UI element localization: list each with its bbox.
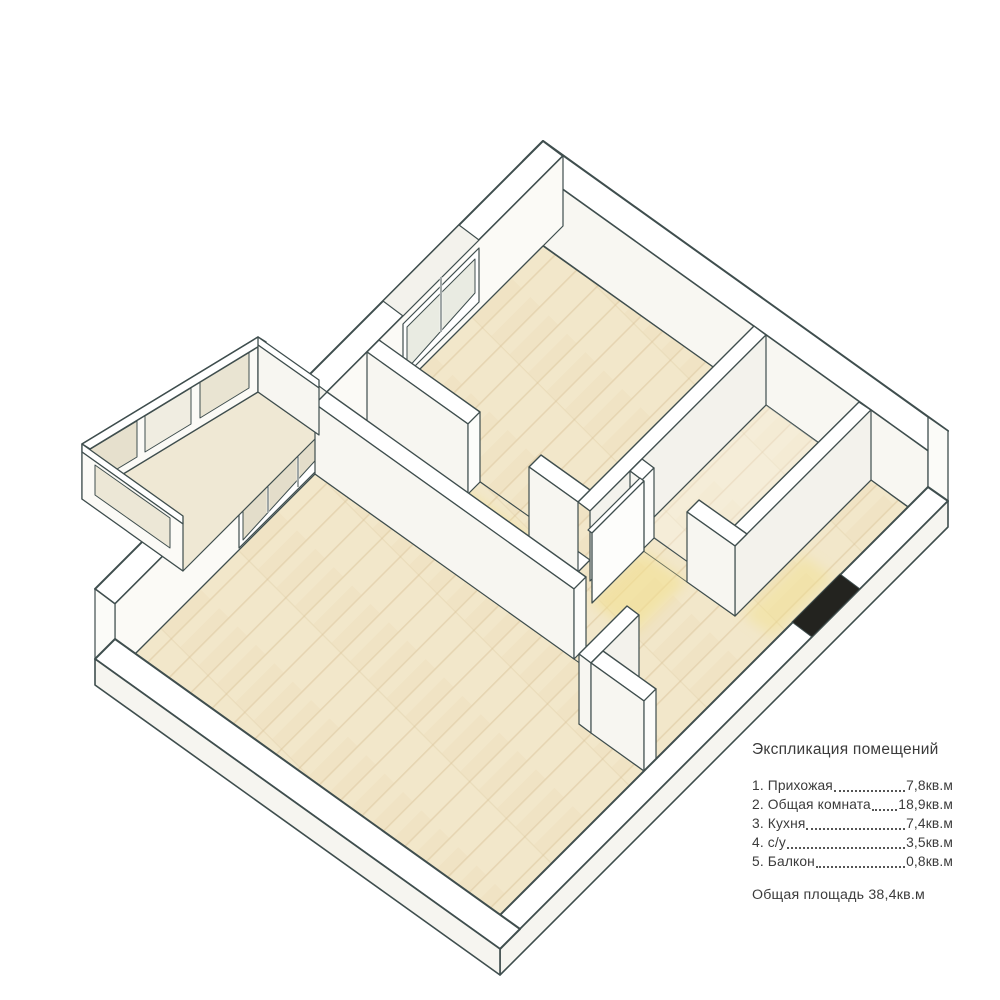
- room-area: 0,8кв.м: [906, 852, 953, 871]
- dot-leader: [816, 866, 905, 868]
- legend-row-bathroom: 4. с/у 3,5кв.м: [752, 833, 953, 852]
- room-name: 4. с/у: [752, 833, 786, 852]
- legend-row-living-room: 2. Общая комната 18,9кв.м: [752, 795, 953, 814]
- room-area: 7,8кв.м: [906, 776, 953, 795]
- legend-row-balcony: 5. Балкон 0,8кв.м: [752, 852, 953, 871]
- dot-leader: [834, 790, 905, 792]
- room-name: 3. Кухня: [752, 814, 805, 833]
- room-area: 7,4кв.м: [906, 814, 953, 833]
- wall-living-north-end: [574, 577, 586, 659]
- room-area: 18,9кв.м: [898, 795, 953, 814]
- legend-rows: 1. Прихожая 7,8кв.м 2. Общая комната 18,…: [752, 776, 953, 871]
- floor-plan-page: Экспликация помещений 1. Прихожая 7,8кв.…: [0, 0, 1000, 1000]
- dot-leader: [806, 828, 905, 830]
- room-name: 2. Общая комната: [752, 795, 871, 814]
- legend-row-hallway: 1. Прихожая 7,8кв.м: [752, 776, 953, 795]
- room-area: 3,5кв.м: [906, 833, 953, 852]
- wall-living-east-end: [644, 689, 656, 771]
- legend-title: Экспликация помещений: [752, 741, 953, 759]
- wall-kitchen-south-a-end: [468, 412, 480, 494]
- room-name: 1. Прихожая: [752, 776, 833, 795]
- room-name: 5. Балкон: [752, 852, 815, 871]
- total-area: Общая площадь 38,4кв.м: [752, 887, 953, 903]
- dot-leader: [872, 809, 897, 811]
- dot-leader: [787, 847, 905, 849]
- legend-row-kitchen: 3. Кухня 7,4кв.м: [752, 814, 953, 833]
- legend: Экспликация помещений 1. Прихожая 7,8кв.…: [752, 741, 953, 903]
- wall-living-jog-sw-face: [579, 654, 591, 733]
